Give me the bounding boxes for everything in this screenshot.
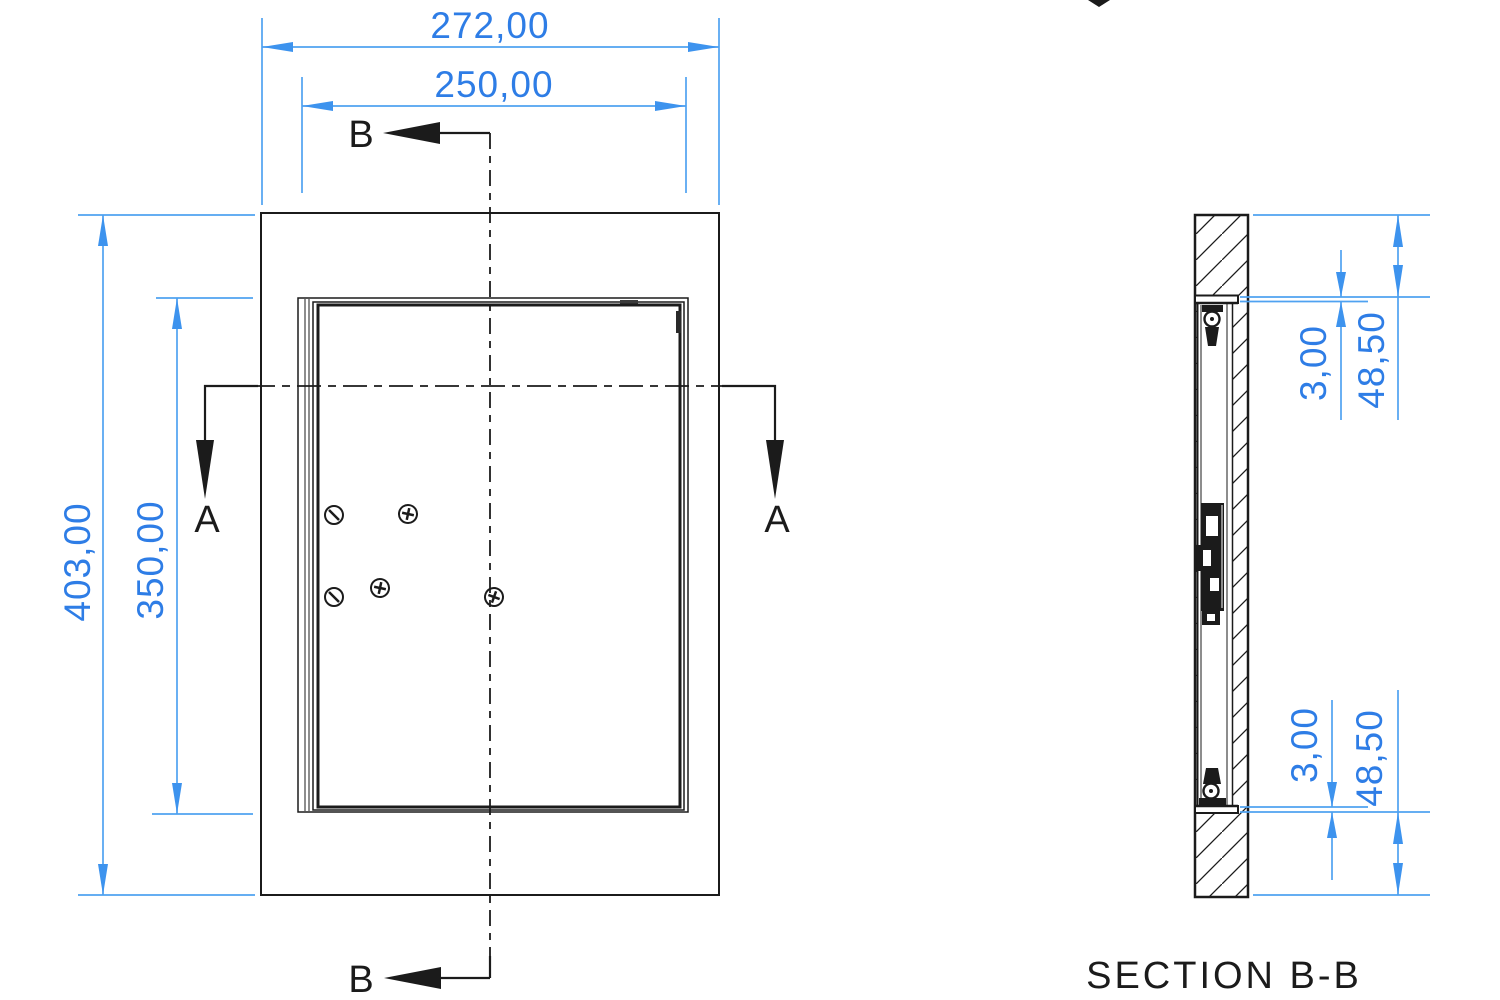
b-bottom-arrow-icon — [384, 967, 441, 989]
dim-outer-height-value: 403,00 — [57, 502, 98, 621]
panel-bottom-flange — [1195, 806, 1238, 813]
dim-bottom-frame-depth: 48,50 — [1349, 690, 1403, 895]
cropped-arrow-mark — [1088, 0, 1110, 7]
a-left-label: A — [194, 499, 220, 541]
dim-bottom-panel-thickness: 3,00 — [1284, 700, 1337, 880]
access-panel-drawing: B B A A 272,00 — [0, 0, 1500, 1000]
door-leaf-outer — [313, 302, 684, 810]
dim-bottom-panel-thickness-value: 3,00 — [1284, 707, 1325, 783]
section-marker-b-top: B — [348, 114, 490, 156]
screw-phillips-3 — [482, 585, 505, 608]
screw-slotted-1 — [325, 506, 343, 524]
front-view: B B A A 272,00 — [57, 5, 790, 1000]
dim-inner-height: 350,00 — [130, 298, 253, 814]
door-top-tick — [620, 300, 638, 304]
panel-opening — [298, 298, 688, 812]
dim-bottom-frame-depth-value: 48,50 — [1349, 709, 1390, 807]
a-left-arrow-icon — [196, 440, 214, 499]
door-leaf-inner — [318, 305, 680, 807]
section-view: 48,50 3,00 48,50 3,00 SECTION B-B — [1086, 215, 1430, 997]
section-marker-a-right: A — [722, 386, 790, 541]
section-marker-b-bottom: B — [348, 956, 490, 1000]
dim-top-panel-thickness: 3,00 — [1293, 250, 1346, 420]
b-top-label: B — [348, 114, 373, 156]
door-right-tick — [676, 311, 681, 333]
dim-inner-width-value: 250,00 — [434, 64, 553, 105]
technical-drawing-page: B B A A 272,00 — [0, 0, 1500, 1000]
b-bottom-label: B — [348, 959, 373, 1000]
dim-top-panel-thickness-value: 3,00 — [1293, 325, 1334, 401]
section-marker-a-left: A — [194, 386, 258, 541]
screw-phillips-2 — [369, 577, 390, 598]
dim-outer-width-value: 272,00 — [430, 5, 549, 46]
dim-inner-height-value: 350,00 — [130, 500, 171, 619]
b-top-arrow-icon — [383, 122, 440, 144]
dim-top-frame-depth: 48,50 — [1351, 215, 1403, 420]
a-right-label: A — [764, 499, 790, 541]
screw-slotted-2 — [325, 588, 343, 606]
section-title: SECTION B-B — [1086, 955, 1362, 997]
a-right-arrow-icon — [766, 440, 784, 499]
dim-top-frame-depth-value: 48,50 — [1351, 311, 1392, 409]
screw-phillips-1 — [397, 503, 418, 524]
panel-top-flange — [1195, 296, 1238, 304]
